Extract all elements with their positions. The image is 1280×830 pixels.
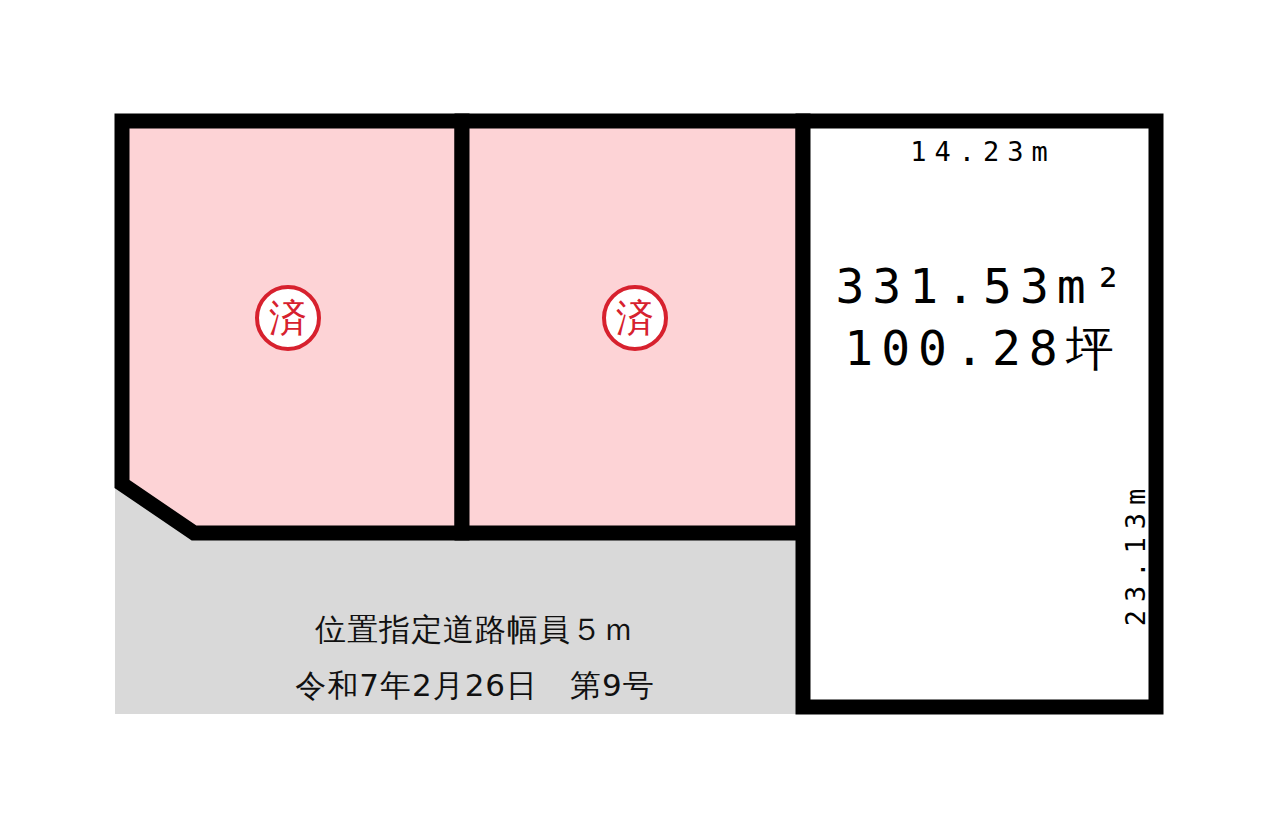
sold-stamp-plot-2: 済 xyxy=(602,285,668,351)
lot-diagram: 済 済 14.23m 331.53m² 100.28坪 23.13m 位置指定道… xyxy=(0,0,1280,830)
road-designation-line: 位置指定道路幅員５ｍ xyxy=(140,601,810,657)
road-date-number-line: 令和7年2月26日 第9号 xyxy=(140,657,810,713)
sold-stamp-text: 済 xyxy=(616,299,654,337)
area-sqm-label: 331.53m² xyxy=(803,255,1163,317)
plot-3-shape xyxy=(803,121,1156,707)
plot-3-area-box: 331.53m² 100.28坪 xyxy=(803,255,1163,379)
area-tsubo-label: 100.28坪 xyxy=(803,317,1163,379)
depth-dimension-label: 23.13m xyxy=(1120,481,1151,627)
sold-stamp-plot-1: 済 xyxy=(255,285,321,351)
frontage-dimension-label: 14.23m xyxy=(803,136,1163,167)
road-annotation: 位置指定道路幅員５ｍ 令和7年2月26日 第9号 xyxy=(140,601,810,713)
sold-stamp-text: 済 xyxy=(269,299,307,337)
